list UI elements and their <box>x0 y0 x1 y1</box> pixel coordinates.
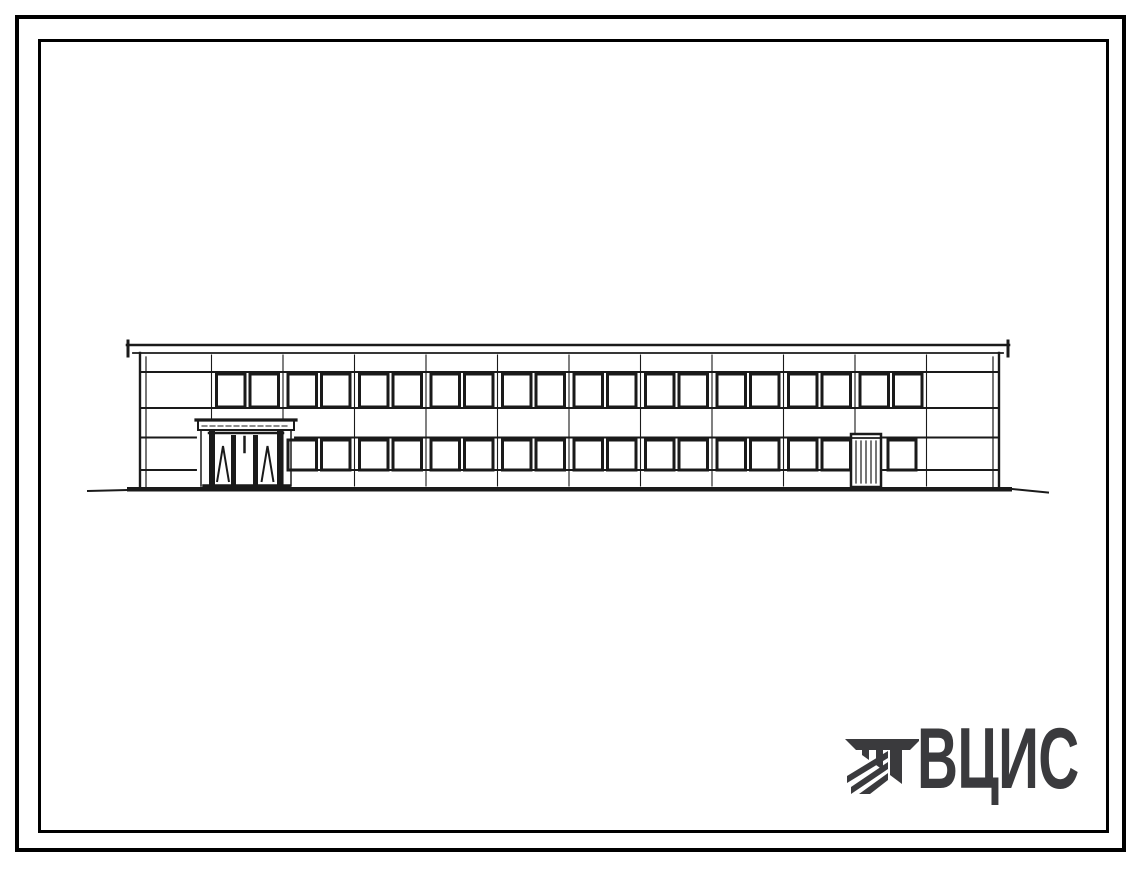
panel-joints <box>212 355 927 486</box>
ground-line <box>88 487 1048 493</box>
drawing-sheet: ВЦИС <box>0 0 1139 869</box>
main-entrance <box>196 420 296 487</box>
building-elevation-drawing <box>0 0 1139 869</box>
roof <box>127 341 1009 356</box>
lower-window-extra <box>888 440 916 470</box>
side-door <box>851 434 881 487</box>
